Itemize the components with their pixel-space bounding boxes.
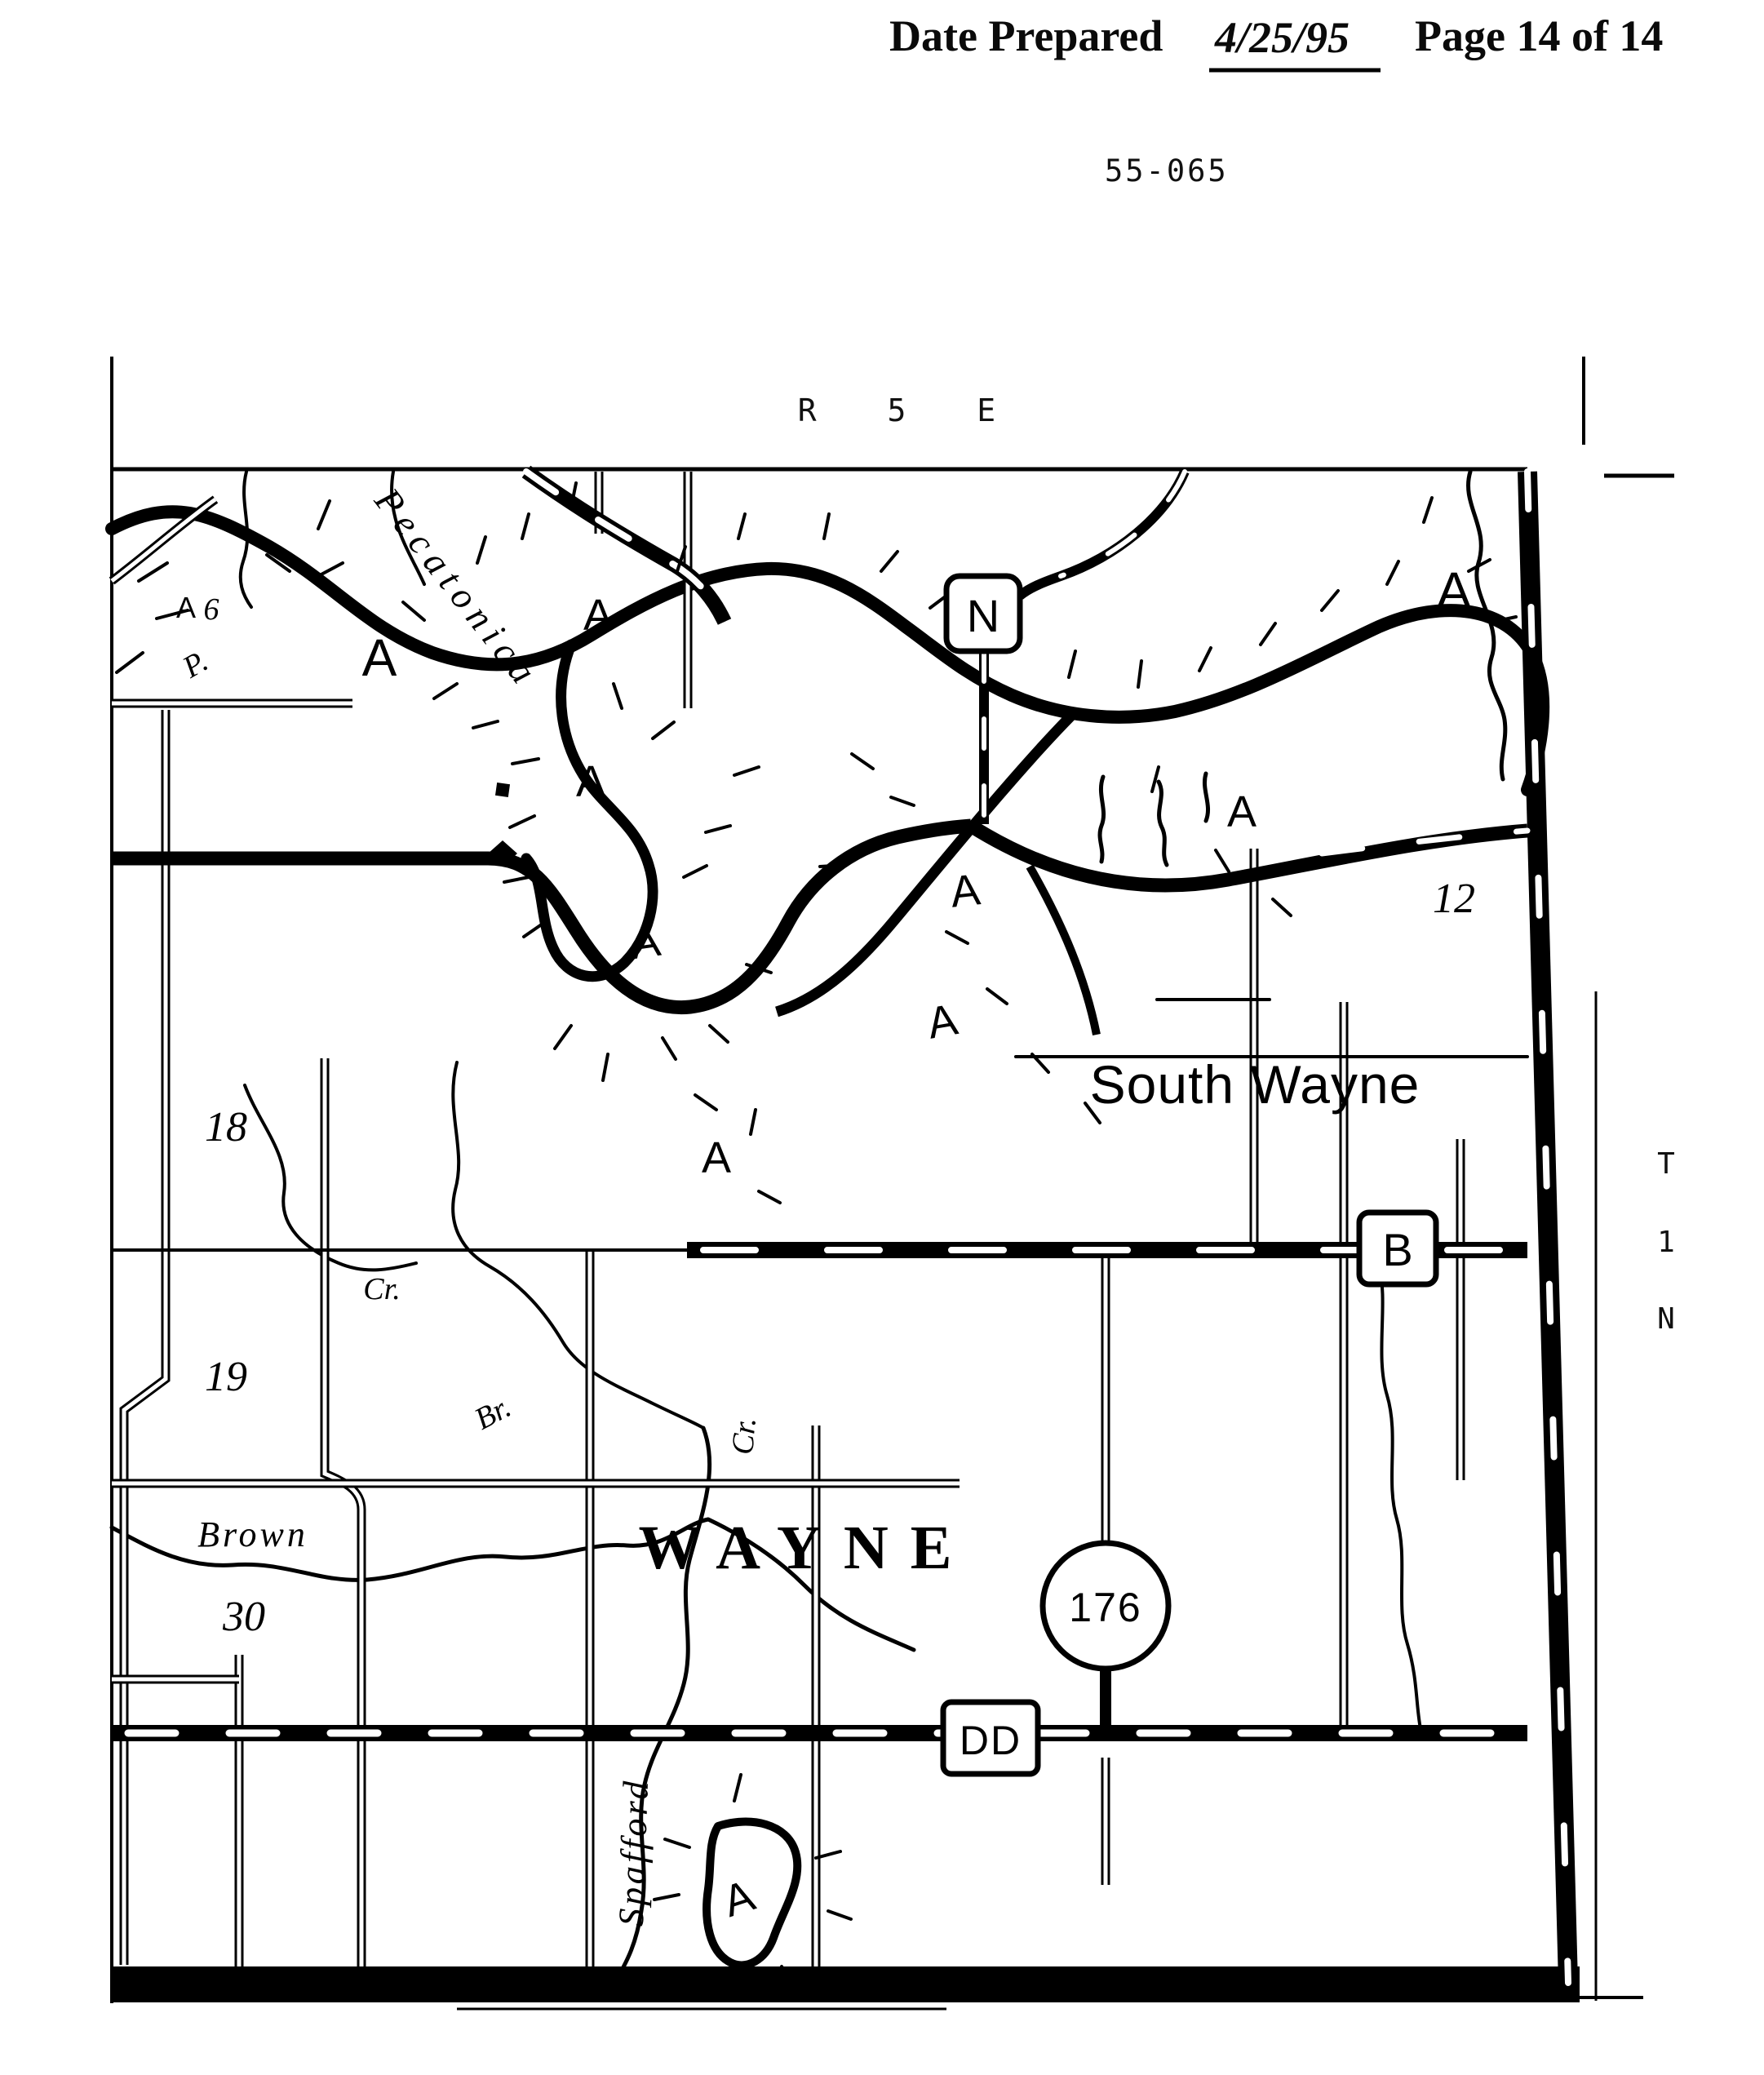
shield-b-label: B — [1382, 1224, 1412, 1275]
pecatonica-river — [112, 512, 1543, 790]
section-12-label: 12 — [1433, 876, 1475, 922]
zone-a-label: A — [702, 1133, 731, 1182]
dashes-n-curve — [1061, 472, 1185, 576]
township-letter-t: T — [1657, 1147, 1675, 1181]
document-number: 55-065 — [1105, 153, 1229, 188]
range-label: R 5 E — [798, 392, 1022, 428]
six-label: 6 — [204, 592, 219, 627]
dashes-top-diagonal — [526, 472, 725, 622]
creek-cr — [453, 1062, 703, 1428]
minor-roads — [112, 472, 1527, 1971]
shield-176-label: 176 — [1069, 1585, 1141, 1630]
highway-shields: N B DD 176 — [943, 576, 1436, 1774]
zone-a-label: A — [627, 916, 663, 969]
south-wayne-label: South Wayne — [1090, 1054, 1421, 1115]
creek-section18 — [245, 1085, 416, 1270]
page-number-label: Page 14 of 14 — [1415, 11, 1663, 60]
shield-dd-label: DD — [960, 1718, 1022, 1763]
zone-a-label: A — [362, 628, 397, 687]
building-symbol — [495, 783, 510, 797]
zone-a-label: A — [924, 995, 961, 1048]
section-18-label: 18 — [205, 1104, 247, 1151]
road-to-southwayne — [1030, 867, 1097, 1035]
zone-a-label: A — [948, 865, 982, 916]
scanned-map-page: Date Prepared 4/25/95 Page 14 of 14 55-0… — [0, 0, 1764, 2075]
section-30-label: 30 — [222, 1594, 265, 1640]
creek-southeast — [1379, 1263, 1421, 1733]
zone-a-label: A — [583, 591, 613, 640]
zone-a-label: A — [1437, 561, 1472, 620]
section-19-label: 19 — [205, 1354, 247, 1400]
creek-abbr-label: Cr. — [363, 1272, 400, 1306]
creek-abbr2-label: Cr. — [725, 1417, 763, 1456]
branch-abbr-label: Br. — [469, 1390, 516, 1436]
zone-a-label: A — [176, 591, 196, 624]
township-letter-1: 1 — [1657, 1226, 1675, 1259]
zone-a-label: A — [1227, 787, 1257, 836]
zone-a-label: A — [576, 757, 605, 806]
township-letter-n: N — [1657, 1302, 1675, 1336]
map-labels: South Wayne WAYNE Pecatonica Brown Spaff… — [176, 480, 1475, 1927]
date-prepared-value: 4/25/95 — [1214, 13, 1350, 62]
page-header: Date Prepared 4/25/95 Page 14 of 14 55-0… — [889, 11, 1663, 188]
brown-label: Brown — [197, 1514, 308, 1554]
road-n-curve — [1020, 472, 1185, 596]
wayne-township-map: Date Prepared 4/25/95 Page 14 of 14 55-0… — [0, 0, 1764, 2075]
date-prepared-label: Date Prepared — [889, 11, 1163, 60]
wayne-label: WAYNE — [639, 1514, 974, 1582]
zone-a-label: A — [717, 1871, 760, 1926]
p-abbr-label: P. — [176, 644, 214, 685]
shield-n-label: N — [967, 590, 999, 641]
spafford-label: Spafford — [611, 1777, 656, 1927]
